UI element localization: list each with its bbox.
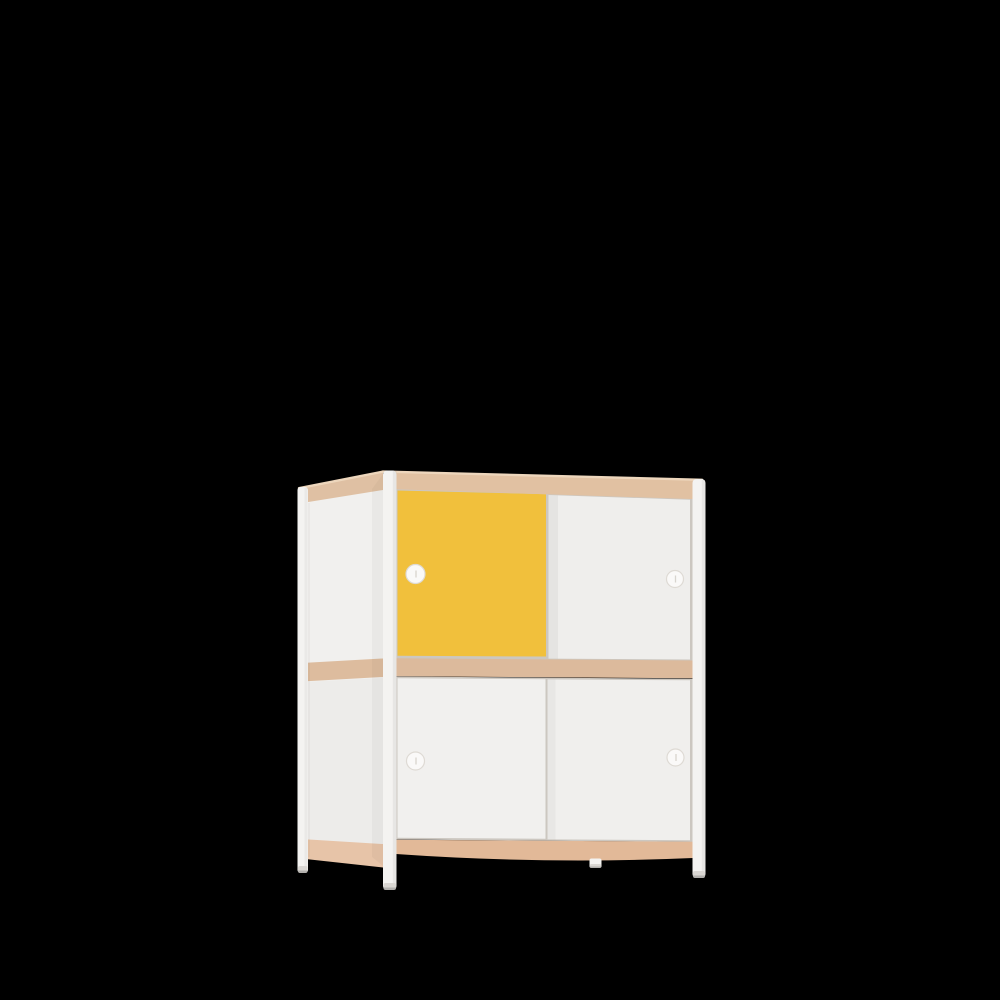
leg-front-left-shade bbox=[393, 471, 397, 889]
foot-shadow bbox=[590, 867, 601, 869]
front-edge-band-middle bbox=[396, 658, 693, 678]
side-panel-lower-shade bbox=[302, 678, 383, 844]
render-stage bbox=[0, 0, 1000, 1000]
cabinet-side-panel bbox=[299, 472, 383, 868]
leg-front-right-shade bbox=[702, 480, 706, 877]
leg-rear-left-shade bbox=[305, 488, 308, 872]
door-bottom-right-seam-shadow bbox=[548, 679, 556, 839]
foot-shadow bbox=[693, 876, 705, 879]
foot-shadow bbox=[298, 871, 308, 874]
foot-shadow bbox=[384, 888, 397, 891]
door-top-right-seam-shadow bbox=[549, 495, 559, 659]
cabinet-render-svg bbox=[0, 0, 1000, 1000]
